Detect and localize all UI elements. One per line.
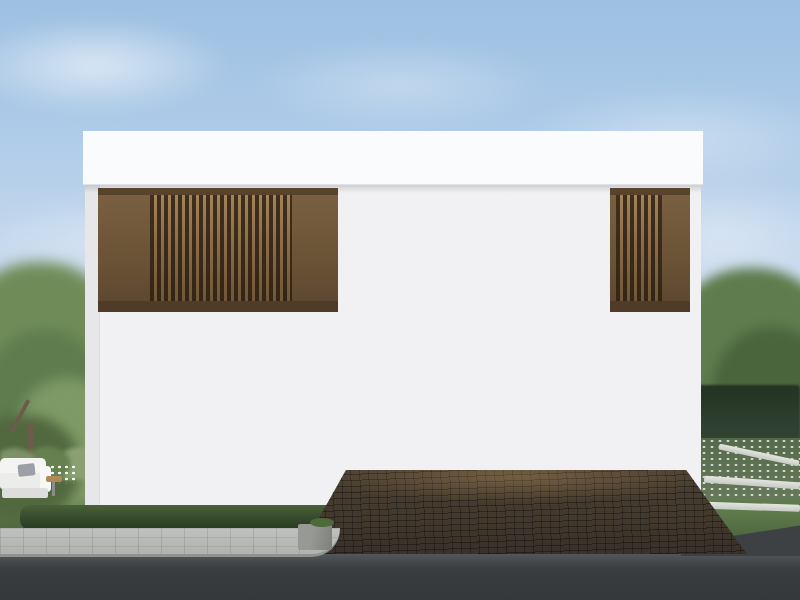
louver-bottom-rail bbox=[98, 301, 338, 312]
cobblestone-driveway bbox=[290, 470, 760, 554]
curb-stone bbox=[298, 524, 332, 550]
louver-slats bbox=[616, 195, 662, 301]
cloud bbox=[250, 42, 550, 127]
side-table-leg bbox=[52, 482, 55, 496]
hedge-strip bbox=[20, 505, 342, 530]
louver-slats bbox=[150, 195, 292, 301]
roof-parapet bbox=[83, 131, 703, 185]
house bbox=[83, 131, 703, 520]
louver-top-rail bbox=[610, 188, 690, 195]
louver-top-rail bbox=[98, 188, 338, 195]
sofa-base bbox=[2, 488, 48, 498]
sidewalk bbox=[0, 528, 340, 557]
outdoor-sofa bbox=[0, 458, 52, 506]
grass-tuft bbox=[310, 518, 334, 527]
right-flower-bed bbox=[700, 438, 800, 500]
house-render-scene bbox=[0, 0, 800, 600]
sofa-pillow bbox=[17, 463, 35, 477]
upper-left-louver-panel bbox=[98, 188, 338, 312]
upper-right-louver-panel bbox=[610, 188, 690, 312]
louver-bottom-rail bbox=[610, 301, 690, 312]
